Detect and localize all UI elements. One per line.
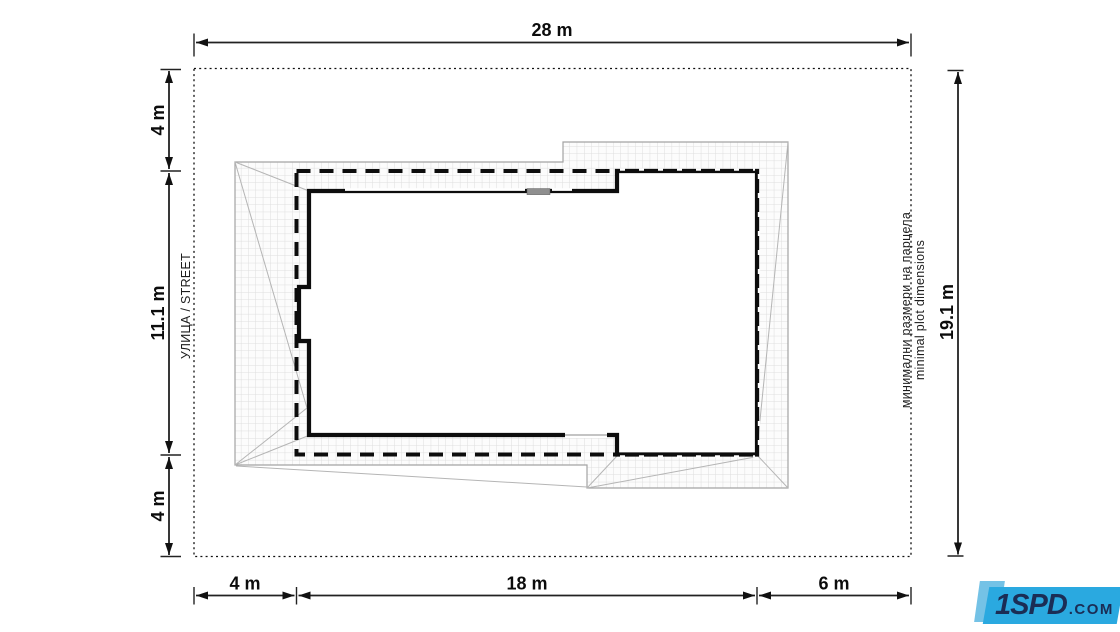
plot-plan-drawing: 28 m 19.1 m 4 m 11.1 m 4 m 4 m 18 m 6 m: [0, 0, 1120, 632]
dimension-label-top: 28 m: [531, 20, 572, 40]
brand-logo: 1SPD .COM: [975, 579, 1120, 629]
dimension-right: 19.1 m: [937, 71, 964, 557]
house-walls: [299, 171, 757, 455]
plot-note-bulgarian: минимални размери на парцела: [899, 212, 913, 408]
dimension-label-left-middle: 11.1 m: [148, 285, 168, 340]
dimension-left: 4 m 11.1 m 4 m: [148, 70, 181, 557]
plot-note-english: minimal plot dimensions: [913, 240, 927, 380]
dimension-label-bottom-left: 4 m: [229, 574, 260, 594]
window-top-wall: [527, 189, 550, 195]
logo-suffix-text: .COM: [1069, 601, 1114, 618]
logo-brand-text: 1SPD: [995, 591, 1067, 620]
street-label: УЛИЦА / STREET: [179, 253, 193, 359]
dimension-label-bottom-middle: 18 m: [506, 574, 547, 594]
logo-front-shape: 1SPD .COM: [983, 587, 1120, 624]
dimension-top: 28 m: [194, 20, 911, 57]
dimension-label-left-bottom: 4 m: [148, 490, 168, 521]
dimension-label-bottom-right: 6 m: [818, 574, 849, 594]
plot-plan-page: 28 m 19.1 m 4 m 11.1 m 4 m 4 m 18 m 6 m: [0, 0, 1120, 632]
dimension-label-left-top: 4 m: [148, 104, 168, 135]
dimension-label-right: 19.1 m: [937, 284, 957, 340]
logo-text: 1SPD .COM: [995, 591, 1114, 620]
dimension-bottom: 4 m 18 m 6 m: [194, 574, 911, 605]
